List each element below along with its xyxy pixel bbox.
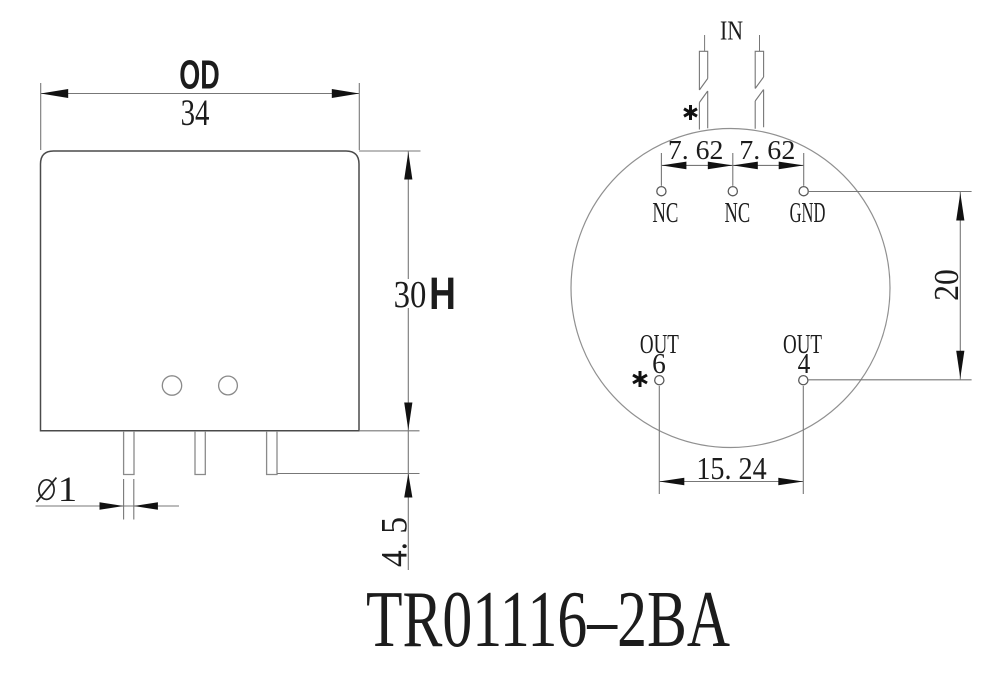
svg-text:NC: NC [724, 198, 750, 229]
svg-text:4. 5: 4. 5 [373, 517, 415, 567]
svg-text:IN: IN [720, 17, 743, 47]
svg-text:7. 62: 7. 62 [739, 135, 795, 166]
svg-text:15. 24: 15. 24 [696, 450, 766, 486]
svg-text:OD: OD [179, 53, 219, 98]
svg-text:GND: GND [790, 198, 826, 228]
svg-text:TR01116–2BA: TR01116–2BA [366, 576, 730, 664]
svg-text:34: 34 [181, 93, 210, 134]
svg-text:20: 20 [927, 269, 966, 301]
svg-text:7. 62: 7. 62 [668, 134, 724, 165]
svg-text:NC: NC [652, 199, 678, 230]
svg-text:H: H [429, 267, 456, 319]
svg-text:1: 1 [58, 470, 77, 509]
svg-text:30: 30 [394, 273, 427, 316]
svg-text:6: 6 [652, 349, 666, 381]
svg-text:4: 4 [798, 348, 811, 380]
